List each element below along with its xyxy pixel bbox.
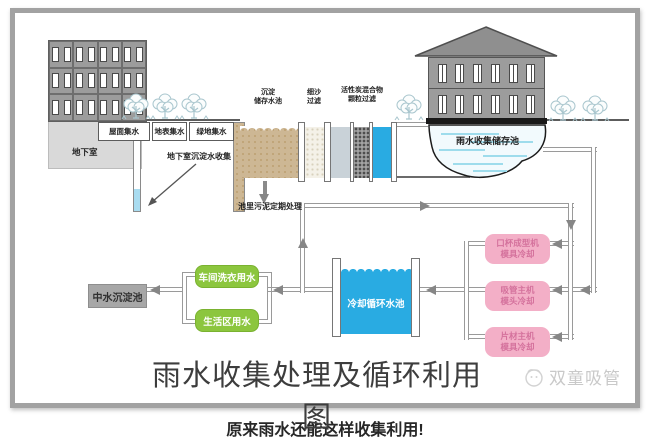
basement-label: 地下室 xyxy=(72,146,98,158)
use-box-laundry: 车间洗衣用水 xyxy=(195,265,259,288)
window-icon xyxy=(88,73,95,88)
window-icon xyxy=(52,47,59,62)
sediment-tank xyxy=(240,127,298,178)
pond-label: 雨水收集储存池 xyxy=(456,134,519,147)
house-floor-upper xyxy=(429,64,544,83)
house xyxy=(428,57,545,120)
window-icon xyxy=(52,100,59,115)
pipe-segment xyxy=(591,147,596,293)
brand-watermark: 双童吸管 xyxy=(522,364,621,389)
sludge-note: 池里污泥定期处理 xyxy=(238,201,302,212)
diagram-title: 雨水收集处理及循环利用图 xyxy=(150,352,484,436)
window-icon xyxy=(455,64,464,83)
window-icon xyxy=(64,100,71,115)
pipe-segment xyxy=(464,241,469,340)
use-box-living: 生活区用水 xyxy=(195,309,259,332)
flow-arrow-down xyxy=(566,220,576,230)
house-floor-lower xyxy=(429,95,544,114)
tree-icon xyxy=(176,92,212,126)
gray-chamber xyxy=(331,127,350,178)
pipe-segment xyxy=(543,147,597,152)
window-icon xyxy=(473,95,482,114)
sludge-arrow-shaft xyxy=(263,181,267,194)
building-unit xyxy=(49,68,73,95)
window-icon xyxy=(455,95,464,114)
window-icon xyxy=(136,47,143,62)
building-unit xyxy=(73,68,97,95)
window-icon xyxy=(509,64,518,83)
building-unit xyxy=(122,68,146,95)
green-collect-box: 绿地集水 xyxy=(189,122,234,141)
building-unit xyxy=(73,41,97,68)
roof-collect-box: 屋面集水 xyxy=(98,122,150,141)
window-icon xyxy=(526,64,535,83)
pipe-segment xyxy=(300,203,305,293)
flow-arrow-left xyxy=(426,285,436,295)
building-unit xyxy=(98,41,122,68)
window-icon xyxy=(100,73,107,88)
building-unit xyxy=(122,41,146,68)
window-icon xyxy=(64,47,71,62)
building-unit xyxy=(49,94,73,121)
building-unit xyxy=(73,94,97,121)
basement-collect-note: 地下室沉淀水收集 xyxy=(167,151,231,162)
tree-icon xyxy=(391,93,427,127)
carbon-label: 活性炭混合物 颗粒过滤 xyxy=(332,86,392,104)
flow-arrow-up xyxy=(298,238,308,248)
tree-icon xyxy=(577,94,613,128)
window-icon xyxy=(473,64,482,83)
carbon-filter xyxy=(354,127,369,178)
clean-water-chamber xyxy=(373,127,391,178)
flow-arrow-left xyxy=(552,285,562,295)
building-unit xyxy=(98,68,122,95)
note-pointer-arrow xyxy=(140,160,210,210)
house-roof xyxy=(413,25,559,58)
window-icon xyxy=(76,47,83,62)
window-icon xyxy=(526,95,535,114)
window-icon xyxy=(491,95,500,114)
sediment-label: 沉淀 储存水池 xyxy=(243,88,293,106)
tank-wall xyxy=(350,122,354,182)
window-icon xyxy=(509,95,518,114)
pipe-segment xyxy=(300,203,574,208)
window-icon xyxy=(124,73,131,88)
window-icon xyxy=(88,47,95,62)
window-icon xyxy=(76,73,83,88)
window-icon xyxy=(52,73,59,88)
floor-divider xyxy=(429,88,544,89)
cooling-pool-wall xyxy=(332,258,341,337)
flow-arrow-left xyxy=(273,285,283,295)
window-icon xyxy=(112,73,119,88)
flow-arrow-right xyxy=(420,201,430,211)
window-icon xyxy=(100,47,107,62)
tank-wall xyxy=(298,122,305,182)
window-icon xyxy=(112,47,119,62)
window-icon xyxy=(124,47,131,62)
flow-arrow-left xyxy=(580,285,590,295)
flow-arrow-left xyxy=(552,332,562,342)
window-icon xyxy=(136,73,143,88)
window-icon xyxy=(88,100,95,115)
tree-icon xyxy=(545,94,581,128)
storage-pond xyxy=(427,123,549,185)
flow-arrow-left xyxy=(150,285,160,295)
house-foundation-bar xyxy=(426,118,547,124)
tank-wall xyxy=(324,122,331,182)
watermark-text: 双童吸管 xyxy=(549,364,621,389)
surface-collect-box: 地表集水 xyxy=(152,122,187,141)
machine-box-cup: 口杯成型机 模具冷却 xyxy=(485,234,550,264)
sand-label: 细沙 过滤 xyxy=(295,88,333,106)
tank-wall xyxy=(391,122,397,182)
window-icon xyxy=(100,100,107,115)
building-unit xyxy=(49,41,73,68)
window-icon xyxy=(76,100,83,115)
window-icon xyxy=(438,64,447,83)
cooling-pool-wall xyxy=(411,258,420,337)
sand-filter xyxy=(305,127,324,178)
machine-box-straw: 吸管主机 模头冷却 xyxy=(485,281,550,311)
reclaim-pool-box: 中水沉淀池 xyxy=(88,284,147,308)
flow-arrow-left xyxy=(552,239,562,249)
window-icon xyxy=(491,64,500,83)
window-icon xyxy=(64,73,71,88)
tank-wall xyxy=(369,122,373,182)
watermark-logo-icon xyxy=(522,365,546,389)
window-icon xyxy=(438,95,447,114)
cooling-pool-water: 冷却循环水池 xyxy=(341,268,411,334)
machine-box-sheet: 片材主机 模具冷却 xyxy=(485,327,550,357)
cooling-pool-label: 冷却循环水池 xyxy=(341,296,411,310)
